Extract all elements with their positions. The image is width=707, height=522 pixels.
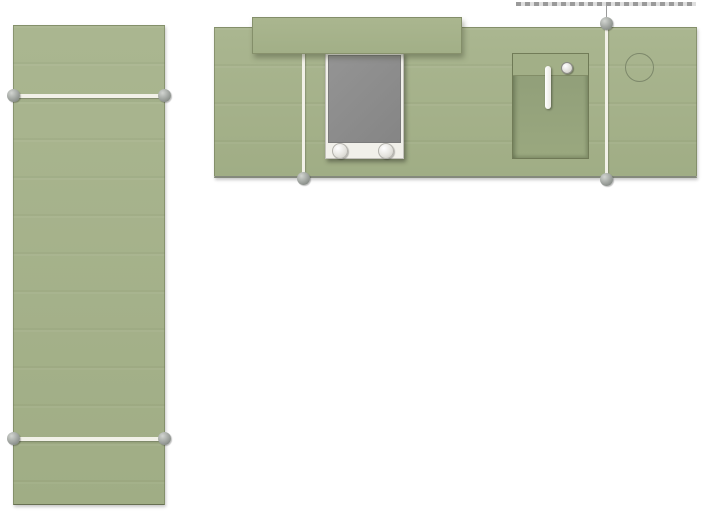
circular-cutout-outline[interactable] [625,53,654,82]
left-counter-slab[interactable] [13,25,165,505]
raised-shelf[interactable] [252,17,462,54]
sink-basin[interactable] [512,53,589,159]
seam-line [12,94,166,98]
cooktop-knob[interactable] [378,143,394,159]
connector-joint[interactable] [600,173,613,186]
connector-joint[interactable] [297,172,310,185]
connector-joint[interactable] [600,17,613,30]
connector-joint[interactable] [158,432,171,445]
connector-joint[interactable] [7,432,20,445]
seam-line [12,437,166,441]
faucet[interactable] [545,66,551,109]
cooktop-knob[interactable] [332,143,348,159]
connector-joint[interactable] [7,89,20,102]
seam-line [605,28,608,177]
plan-canvas [0,0,707,522]
cooktop-glass [328,55,401,143]
connector-joint[interactable] [158,89,171,102]
cooktop-module[interactable] [325,52,404,159]
faucet-cap [561,62,573,74]
seam-line [302,50,305,177]
